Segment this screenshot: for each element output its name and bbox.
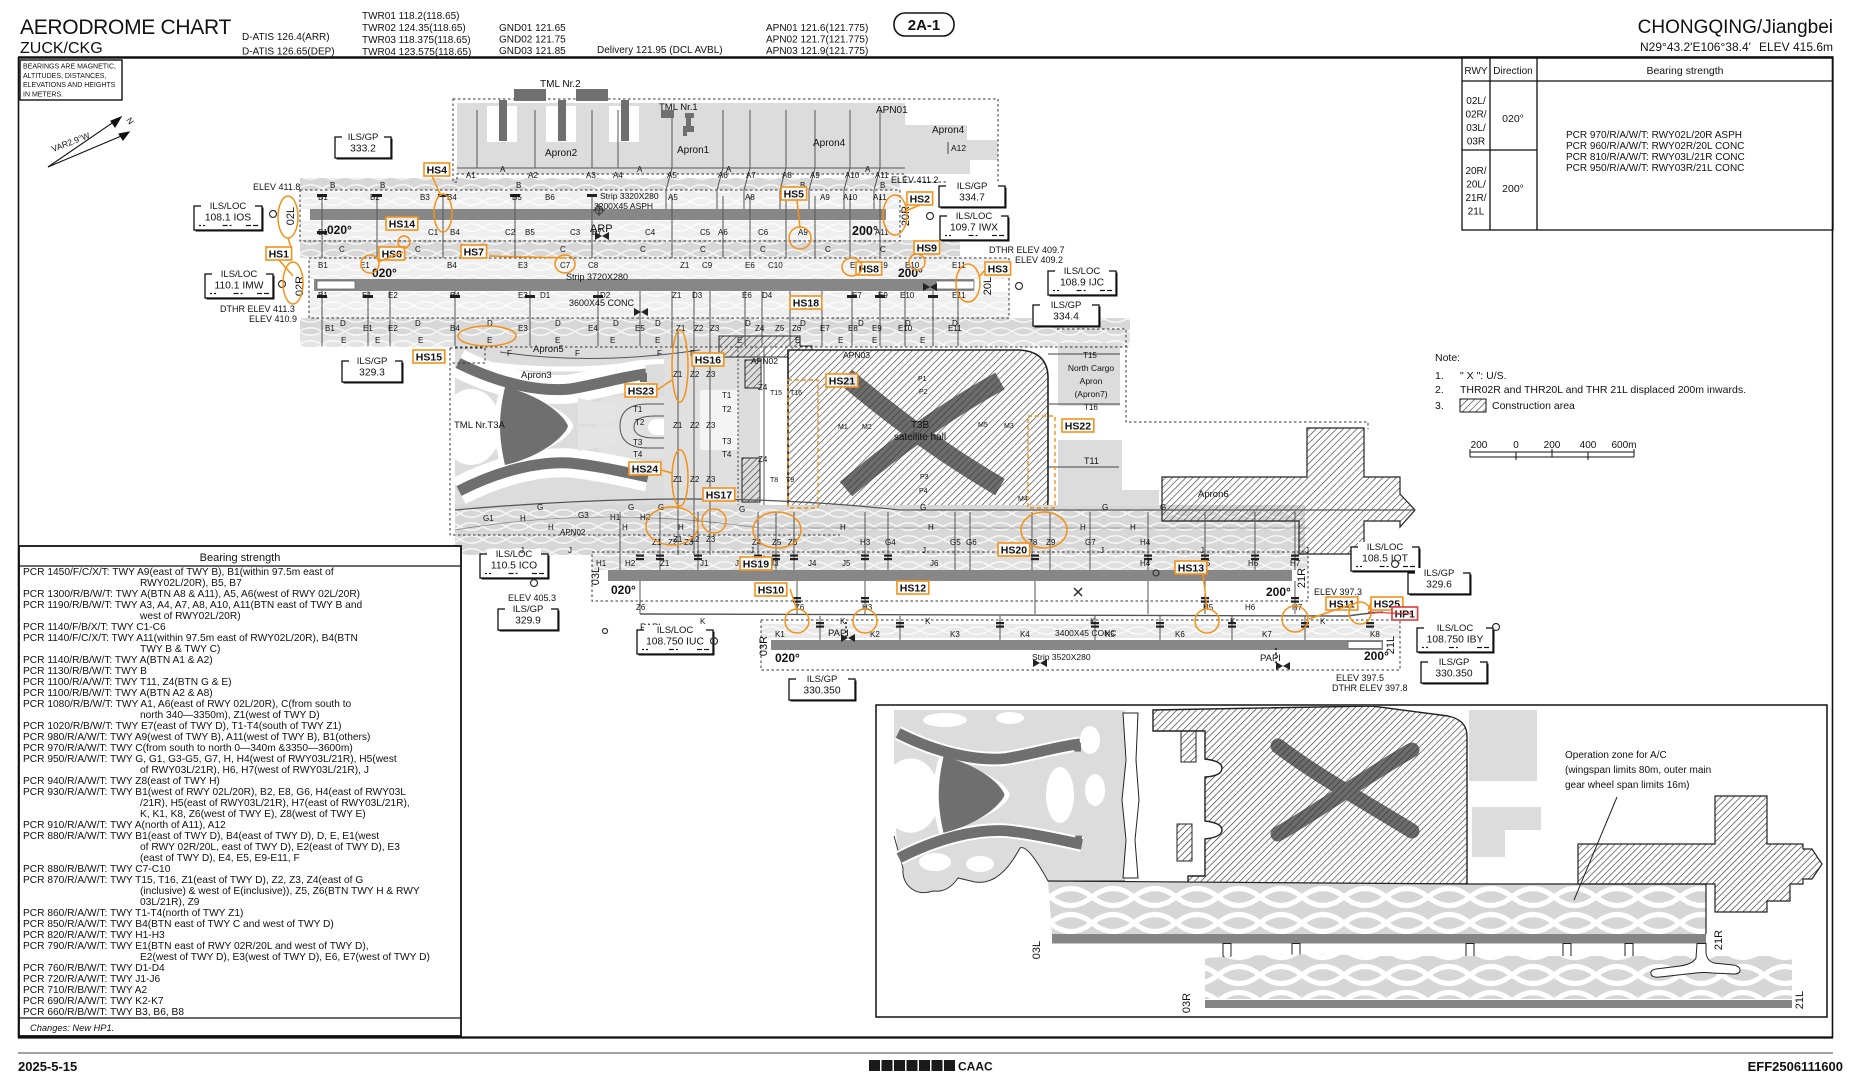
svg-text:C1: C1: [428, 228, 439, 237]
svg-text:ILS/LOC: ILS/LOC: [221, 269, 258, 280]
svg-text:(inclusive) & west of E(inclus: (inclusive) & west of E(inclusive)), Z5,…: [140, 886, 420, 897]
svg-text:of RWY 02R/20L, east of TWY D): of RWY 02R/20L, east of TWY D), E2(east …: [140, 842, 400, 853]
svg-text:03R: 03R: [1181, 993, 1193, 1013]
svg-text:north 340—3350m), Z1(west of T: north 340—3350m), Z1(west of TWY D): [140, 710, 320, 721]
svg-text:D-ATIS 126.4(ARR): D-ATIS 126.4(ARR): [242, 32, 330, 43]
svg-text:T16: T16: [1084, 403, 1098, 412]
svg-text:PCR 910/R/A/W/T: TWY A(north o: PCR 910/R/A/W/T: TWY A(north of A11), A1…: [23, 820, 226, 831]
svg-text:T3: T3: [722, 437, 732, 446]
svg-text:03L: 03L: [1031, 941, 1043, 959]
svg-text:PCR 810/R/A/W/T: RWY03L/21R CO: PCR 810/R/A/W/T: RWY03L/21R CONC: [1566, 152, 1745, 163]
svg-text:E: E: [920, 336, 925, 345]
svg-text:329.9: 329.9: [515, 616, 541, 627]
svg-text:333.2: 333.2: [350, 144, 376, 155]
svg-text:HS18: HS18: [793, 298, 819, 310]
svg-text:A5: A5: [667, 171, 677, 180]
svg-text:A9: A9: [820, 193, 830, 202]
svg-text:G1: G1: [483, 514, 494, 523]
svg-text:satellite hall: satellite hall: [894, 432, 946, 443]
svg-text:GND02 121.75: GND02 121.75: [499, 35, 566, 46]
svg-text:108.750 IBY: 108.750 IBY: [1427, 635, 1484, 646]
svg-text:H3: H3: [860, 538, 871, 547]
svg-text:H: H: [928, 523, 934, 532]
svg-text:" X ": U/S.: " X ": U/S.: [1460, 370, 1507, 382]
svg-text:J5: J5: [842, 559, 851, 568]
svg-text:J: J: [1200, 546, 1204, 555]
svg-text:020°: 020°: [327, 223, 352, 237]
svg-text:HS13: HS13: [1178, 563, 1204, 575]
svg-text:DTHR ELEV 397.8: DTHR ELEV 397.8: [1332, 683, 1408, 693]
svg-text:334.4: 334.4: [1053, 312, 1079, 323]
svg-text:E: E: [341, 336, 346, 345]
svg-text:ILS/GP: ILS/GP: [1439, 657, 1470, 668]
svg-text:PCR 1190/R/B/W/T: TWY A3, A4,: PCR 1190/R/B/W/T: TWY A3, A4, A7, A8, A1…: [23, 600, 363, 611]
svg-text:020°: 020°: [775, 651, 800, 665]
svg-text:Strip 3520X280: Strip 3520X280: [1032, 652, 1091, 662]
svg-text:A5: A5: [668, 193, 678, 202]
svg-text:ELEV 397.5: ELEV 397.5: [1336, 673, 1384, 683]
svg-text:200°: 200°: [1364, 649, 1389, 663]
svg-text:B1: B1: [318, 228, 328, 237]
svg-text:C: C: [760, 245, 766, 254]
svg-text:B4: B4: [450, 324, 460, 333]
svg-text:ILS/LOC: ILS/LOC: [210, 201, 247, 212]
svg-text:02R/: 02R/: [1465, 110, 1486, 121]
svg-text:C3: C3: [570, 228, 581, 237]
svg-text:C: C: [560, 245, 566, 254]
svg-text:H1: H1: [596, 559, 607, 568]
svg-text:E6: E6: [742, 291, 752, 300]
svg-text:Bearing strength: Bearing strength: [1646, 65, 1723, 77]
svg-text:K: K: [840, 617, 846, 626]
svg-text:Z1: Z1: [673, 475, 683, 484]
svg-text:C: C: [415, 245, 421, 254]
svg-text:M3: M3: [1004, 423, 1014, 430]
svg-text:G: G: [537, 503, 543, 512]
svg-text:D: D: [655, 319, 661, 328]
svg-text:Z3: Z3: [706, 475, 716, 484]
svg-text:K5: K5: [1105, 630, 1115, 639]
svg-text:B1: B1: [325, 324, 335, 333]
svg-text:T3B: T3B: [911, 420, 930, 431]
svg-text:APN01: APN01: [876, 105, 908, 116]
svg-text:P3: P3: [920, 474, 929, 481]
svg-text:Delivery 121.95 (DCL AVBL): Delivery 121.95 (DCL AVBL): [597, 45, 723, 56]
svg-text:C4: C4: [645, 228, 656, 237]
svg-text:ILS/LOC: ILS/LOC: [1064, 266, 1101, 277]
svg-text:(east of TWY D), E4, E5, E9-E1: (east of TWY D), E4, E5, E9-E11, F: [140, 853, 300, 864]
svg-text:TML Nr.2: TML Nr.2: [540, 79, 581, 90]
svg-text:B4: B4: [447, 261, 457, 270]
svg-text:110.1 IMW: 110.1 IMW: [214, 281, 263, 292]
svg-text:A11: A11: [873, 193, 887, 202]
svg-text:02L/: 02L/: [1466, 96, 1486, 107]
svg-text:PCR 720/R/A/W/T: TWY J1-J6: PCR 720/R/A/W/T: TWY J1-J6: [23, 974, 161, 985]
svg-text:T2: T2: [722, 405, 732, 414]
svg-text:PCR 1080/R/B/W/T: TWY A1, A6(e: PCR 1080/R/B/W/T: TWY A1, A6(east of RWY…: [23, 699, 352, 710]
svg-text:0: 0: [1513, 440, 1519, 451]
svg-text:E2: E2: [388, 291, 398, 300]
svg-text:PCR 880/R/A/W/T: TWY B1(east o: PCR 880/R/A/W/T: TWY B1(east of TWY D), …: [23, 831, 379, 842]
svg-text:E9: E9: [878, 291, 888, 300]
svg-text:C2: C2: [505, 228, 516, 237]
svg-text:J: J: [750, 546, 754, 555]
svg-text:HS3: HS3: [988, 264, 1009, 276]
svg-text:Z4: Z4: [755, 324, 765, 333]
svg-text:ILS/GP: ILS/GP: [957, 181, 988, 192]
svg-text:E: E: [418, 336, 423, 345]
svg-text:PCR 1140/F/B/X/T: TWY C1-C6: PCR 1140/F/B/X/T: TWY C1-C6: [23, 622, 166, 633]
svg-text:D: D: [340, 319, 346, 328]
svg-text:E: E: [795, 336, 800, 345]
svg-text:108.1 IOS: 108.1 IOS: [205, 213, 251, 224]
svg-text:G4: G4: [885, 538, 896, 547]
svg-text:D: D: [415, 319, 421, 328]
svg-text:E: E: [737, 336, 742, 345]
svg-text:of RWY03L/21R), H6, H7(west of: of RWY03L/21R), H6, H7(west of RWY03L/21…: [140, 765, 369, 776]
svg-text:H: H: [1080, 523, 1086, 532]
svg-text:C7: C7: [560, 261, 571, 270]
svg-text:HS7: HS7: [464, 247, 485, 259]
svg-text:D3: D3: [692, 291, 703, 300]
svg-text:E1: E1: [363, 324, 373, 333]
svg-text:G5: G5: [950, 538, 961, 547]
svg-text:A6: A6: [718, 228, 728, 237]
svg-text:200: 200: [1471, 440, 1488, 451]
svg-text:C6: C6: [758, 228, 769, 237]
svg-text:D: D: [745, 319, 751, 328]
svg-text:A: A: [865, 165, 871, 174]
svg-text:J: J: [520, 546, 524, 555]
svg-text:M1: M1: [838, 424, 848, 431]
svg-text:RWY02L/20R), B5, B7: RWY02L/20R), B5, B7: [140, 578, 242, 589]
svg-text:Operation zone for A/C: Operation zone for A/C: [1565, 750, 1667, 761]
svg-text:ELEV 411.8: ELEV 411.8: [253, 182, 300, 192]
svg-text:B: B: [516, 181, 521, 190]
svg-text:H: H: [520, 514, 526, 523]
svg-text:TWY B & TWY C): TWY B & TWY C): [140, 644, 220, 655]
svg-text:Z3: Z3: [706, 535, 716, 544]
svg-text:PCR 940/R/A/W/T: TWY Z8(east o: PCR 940/R/A/W/T: TWY Z8(east of TWY H): [23, 776, 220, 787]
svg-text:PCR 960/R/A/W/T: RWY02R/20L CO: PCR 960/R/A/W/T: RWY02R/20L CONC: [1566, 141, 1744, 152]
svg-text:PCR 1100/R/A/W/T: TWY T11, Z4(: PCR 1100/R/A/W/T: TWY T11, Z4(BTN G & E): [23, 677, 232, 688]
svg-text:B2: B2: [370, 193, 380, 202]
svg-text:P4: P4: [919, 488, 928, 495]
svg-text:ILS/GP: ILS/GP: [357, 356, 388, 367]
svg-text:N29°43.2'E106°38.4': N29°43.2'E106°38.4': [1640, 40, 1751, 54]
svg-text:PCR 870/R/A/W/T: TWY T15, T16,: PCR 870/R/A/W/T: TWY T15, T16, Z1(east o…: [23, 875, 363, 886]
svg-text:Strip 3320X280: Strip 3320X280: [600, 191, 659, 201]
svg-text:PCR 950/R/A/W/T: TWY G, G1, G3: PCR 950/R/A/W/T: TWY G, G1, G3-G5, G7, H…: [23, 754, 397, 765]
svg-text:03L/: 03L/: [1466, 123, 1486, 134]
svg-text:PCR 820/R/A/W/T: TWY H1-H3: PCR 820/R/A/W/T: TWY H1-H3: [23, 930, 165, 941]
svg-text:HS2: HS2: [910, 194, 931, 206]
svg-text:Z5: Z5: [775, 324, 785, 333]
svg-text:Note:: Note:: [1435, 352, 1460, 364]
svg-text:03R: 03R: [758, 636, 770, 656]
svg-text:APN01 121.6(121.775): APN01 121.6(121.775): [766, 23, 868, 34]
svg-text:K: K: [925, 617, 931, 626]
svg-text:PCR 1300/R/B/W/T: TWY A(BTN A8: PCR 1300/R/B/W/T: TWY A(BTN A8 & A11), A…: [23, 589, 360, 600]
svg-text:T4: T4: [722, 450, 732, 459]
svg-text:330.350: 330.350: [803, 686, 840, 697]
svg-text:J: J: [1100, 546, 1104, 555]
svg-text:Changes: New HP1.: Changes: New HP1.: [30, 1023, 114, 1033]
svg-text:C9: C9: [702, 261, 713, 270]
svg-text:02L: 02L: [285, 207, 297, 225]
svg-text:APN02: APN02: [751, 356, 778, 366]
svg-text:ILS/GP: ILS/GP: [807, 674, 838, 685]
svg-text:J: J: [568, 546, 572, 555]
svg-text:H6: H6: [1245, 603, 1256, 612]
svg-text:E5: E5: [635, 324, 645, 333]
svg-text:HS4: HS4: [427, 165, 448, 177]
svg-text:H: H: [678, 523, 684, 532]
svg-text:PCR 850/R/A/W/T: TWY B4(BTN ea: PCR 850/R/A/W/T: TWY B4(BTN east of TWY …: [23, 919, 334, 930]
svg-text:330.350: 330.350: [1435, 669, 1472, 680]
svg-text:TWR01 118.2(118.65): TWR01 118.2(118.65): [362, 11, 459, 22]
svg-text:gear wheel span limits 16m): gear wheel span limits 16m): [1565, 780, 1690, 791]
svg-text:108.750 IUC: 108.750 IUC: [646, 637, 704, 648]
svg-text:Apron4: Apron4: [813, 138, 846, 149]
svg-text:THR02R and THR20L and THR 21L: THR02R and THR20L and THR 21L displaced …: [1460, 384, 1746, 396]
svg-text:A2: A2: [528, 171, 538, 180]
svg-text:E8: E8: [848, 324, 858, 333]
svg-text:HP1: HP1: [1395, 609, 1416, 621]
svg-text:K7: K7: [1262, 630, 1272, 639]
svg-text:A3: A3: [586, 171, 596, 180]
svg-text:K: K: [1230, 617, 1236, 626]
svg-text:DTHR ELEV 411.3: DTHR ELEV 411.3: [220, 304, 295, 314]
svg-text:109.7 IWX: 109.7 IWX: [950, 223, 998, 234]
svg-text:ILS/GP: ILS/GP: [1424, 568, 1455, 579]
svg-text:(Apron7): (Apron7): [1074, 389, 1107, 399]
svg-text:K: K: [700, 617, 706, 626]
svg-text:HS10: HS10: [758, 585, 784, 597]
svg-text:Z6: Z6: [636, 603, 646, 612]
svg-text:E3: E3: [518, 261, 528, 270]
svg-text:Z3: Z3: [706, 421, 716, 430]
svg-text:A4: A4: [613, 171, 623, 180]
svg-text:A7: A7: [746, 171, 756, 180]
svg-text:ALTITUDES, DISTANCES,: ALTITUDES, DISTANCES,: [23, 73, 106, 80]
svg-text:APN02: APN02: [560, 528, 586, 537]
svg-text:PCR 790/R/A/W/T: TWY E1(BTN ea: PCR 790/R/A/W/T: TWY E1(BTN east of RWY …: [23, 941, 369, 952]
svg-text:E: E: [375, 336, 380, 345]
svg-text:03R: 03R: [1467, 137, 1485, 148]
svg-text:IN METERS.: IN METERS.: [23, 91, 63, 98]
svg-text:PCR 970/R/A/W/T: TWY C(from so: PCR 970/R/A/W/T: TWY C(from south to nor…: [23, 743, 353, 754]
svg-text:C8: C8: [588, 261, 599, 270]
svg-text:APN03: APN03: [843, 350, 870, 360]
svg-text:P1: P1: [918, 376, 927, 383]
svg-text:D: D: [858, 319, 864, 328]
svg-text:H6: H6: [1248, 559, 1259, 568]
svg-text:Apron2: Apron2: [545, 148, 578, 159]
svg-text:H4: H4: [1140, 538, 1151, 547]
svg-text:G: G: [739, 505, 745, 514]
svg-text:E10: E10: [900, 291, 915, 300]
svg-text:HS16: HS16: [695, 355, 721, 367]
svg-text:PCR 710/R/B/W/T: TWY A2: PCR 710/R/B/W/T: TWY A2: [23, 985, 148, 996]
svg-text:K: K: [1320, 617, 1326, 626]
svg-text:D: D: [555, 319, 561, 328]
svg-text:H1: H1: [610, 513, 621, 522]
svg-text:A: A: [726, 165, 732, 174]
svg-text:HS23: HS23: [628, 386, 654, 398]
svg-text:E: E: [655, 336, 660, 345]
svg-text:A9: A9: [810, 171, 820, 180]
svg-text:H: H: [548, 523, 554, 532]
svg-text:ELEVATIONS AND HEIGHTS: ELEVATIONS AND HEIGHTS: [23, 82, 116, 89]
svg-text:P2: P2: [919, 389, 928, 396]
svg-text:/21R), H5(east of RWY03L/21R),: /21R), H5(east of RWY03L/21R), H7(east o…: [140, 798, 410, 809]
svg-text:Z2: Z2: [694, 324, 704, 333]
svg-text:K: K: [1090, 617, 1096, 626]
svg-text:020°: 020°: [1502, 113, 1524, 125]
svg-text:Strip 3720X280: Strip 3720X280: [566, 272, 628, 282]
svg-text:A10: A10: [845, 171, 860, 180]
svg-text:108.9 IJC: 108.9 IJC: [1060, 278, 1105, 289]
svg-text:PCR 760/R/B/W/T: TWY D1-D4: PCR 760/R/B/W/T: TWY D1-D4: [23, 963, 165, 974]
svg-text:020°: 020°: [372, 266, 397, 280]
svg-text:A8: A8: [782, 171, 792, 180]
svg-text:E9: E9: [872, 324, 882, 333]
svg-text:HS5: HS5: [784, 189, 805, 201]
svg-text:A8: A8: [745, 193, 755, 202]
svg-text:T3: T3: [633, 438, 643, 447]
svg-text:J: J: [922, 546, 926, 555]
svg-text:Z2: Z2: [690, 475, 700, 484]
svg-text:K8: K8: [1370, 630, 1380, 639]
svg-text:F: F: [507, 349, 512, 358]
svg-text:Z3: Z3: [710, 324, 720, 333]
svg-text:TML Nr.1: TML Nr.1: [659, 102, 698, 113]
svg-text:Apron3: Apron3: [521, 370, 552, 381]
svg-text:G: G: [1160, 503, 1166, 512]
svg-text:HS14: HS14: [389, 219, 415, 231]
svg-text:K, K1, K8, Z6(west of TWY E),: K, K1, K8, Z6(west of TWY E), Z8(west of…: [140, 809, 366, 820]
svg-text:2.: 2.: [1435, 384, 1444, 396]
svg-text:DTHR ELEV 409.7: DTHR ELEV 409.7: [989, 245, 1065, 255]
svg-text:F: F: [575, 349, 580, 358]
svg-text:A11: A11: [875, 171, 889, 180]
svg-text:E3: E3: [518, 324, 528, 333]
svg-text:H: H: [622, 523, 628, 532]
svg-text:North Cargo: North Cargo: [1068, 363, 1115, 373]
svg-text:2025-5-15: 2025-5-15: [18, 1059, 77, 1074]
svg-text:J4: J4: [808, 559, 817, 568]
svg-text:D1: D1: [540, 291, 551, 300]
svg-text:APN03 121.9(121.775): APN03 121.9(121.775): [766, 46, 868, 57]
svg-text:G3: G3: [578, 511, 589, 520]
svg-text:PCR 690/R/A/W/T: TWY K2-K7: PCR 690/R/A/W/T: TWY K2-K7: [23, 996, 164, 1007]
svg-text:Apron5: Apron5: [533, 344, 564, 355]
svg-text:Direction: Direction: [1493, 66, 1532, 77]
svg-text:329.6: 329.6: [1426, 580, 1452, 591]
svg-text:C: C: [339, 245, 345, 254]
svg-text:CAAC: CAAC: [958, 1060, 993, 1074]
svg-text:21R: 21R: [1296, 568, 1308, 588]
svg-text:E11: E11: [948, 324, 962, 333]
svg-text:EFF2506111600: EFF2506111600: [1748, 1059, 1843, 1074]
svg-text:H2: H2: [625, 559, 636, 568]
svg-text:K3: K3: [950, 630, 960, 639]
svg-text:T8: T8: [770, 477, 778, 484]
svg-text:E1: E1: [362, 291, 372, 300]
svg-text:T11: T11: [1084, 456, 1099, 466]
svg-text:HS20: HS20: [1001, 545, 1027, 557]
svg-text:E: E: [838, 336, 843, 345]
svg-text:G7: G7: [1085, 538, 1096, 547]
svg-text:T15: T15: [1083, 351, 1097, 360]
svg-text:ILS/LOC: ILS/LOC: [1367, 542, 1404, 553]
svg-text:2A-1: 2A-1: [908, 17, 941, 34]
svg-text:200°: 200°: [1266, 585, 1291, 599]
svg-text:Z2: Z2: [690, 370, 700, 379]
svg-text:PCR 980/R/A/W/T: TWY A9(west o: PCR 980/R/A/W/T: TWY A9(west of TWY B), …: [23, 732, 370, 743]
svg-text:ELEV 397.3: ELEV 397.3: [1314, 587, 1362, 597]
svg-text:Z1: Z1: [660, 559, 670, 568]
svg-text:Apron6: Apron6: [1198, 489, 1229, 500]
svg-text:AERODROME CHART: AERODROME CHART: [20, 16, 231, 39]
svg-text:PCR 1130/R/B/W/T: TWY B: PCR 1130/R/B/W/T: TWY B: [23, 666, 147, 677]
svg-text:PCR 1140/F/C/X/T: TWY A11(with: PCR 1140/F/C/X/T: TWY A11(within 97.5m e…: [23, 633, 358, 644]
svg-text:334.7: 334.7: [959, 193, 985, 204]
svg-text:RWY: RWY: [1464, 66, 1487, 77]
svg-text:020°: 020°: [611, 583, 636, 597]
svg-text:ILS/GP: ILS/GP: [513, 604, 544, 615]
svg-text:H4: H4: [1140, 559, 1151, 568]
svg-text:600m: 600m: [1611, 440, 1636, 451]
svg-text:ILS/GP: ILS/GP: [1051, 300, 1082, 311]
svg-text:02R: 02R: [294, 276, 306, 296]
svg-text:K6: K6: [1175, 630, 1185, 639]
svg-text:ILS/LOC: ILS/LOC: [657, 625, 694, 636]
svg-text:B4: B4: [450, 291, 460, 300]
svg-text:3.: 3.: [1435, 400, 1444, 412]
svg-text:C: C: [640, 245, 646, 254]
svg-text:ILS/LOC: ILS/LOC: [956, 211, 993, 222]
svg-text:T2: T2: [635, 418, 645, 427]
svg-text:HS9: HS9: [917, 243, 938, 255]
svg-text:TWR03 118.375(118.65): TWR03 118.375(118.65): [362, 35, 471, 46]
svg-text:TWR04 123.575(118.65): TWR04 123.575(118.65): [362, 47, 471, 58]
svg-text:A1: A1: [466, 171, 476, 180]
svg-text:E: E: [872, 336, 877, 345]
svg-text:03L/21R), Z9: 03L/21R), Z9: [140, 897, 200, 908]
svg-text:J6: J6: [930, 559, 939, 568]
svg-text:Z6: Z6: [792, 324, 802, 333]
svg-text:(wingspan limits 80m, outer ma: (wingspan limits 80m, outer main: [1565, 765, 1711, 776]
svg-text:G6: G6: [966, 538, 977, 547]
svg-text:B6: B6: [545, 193, 555, 202]
svg-text:C: C: [825, 245, 831, 254]
svg-text:T4: T4: [633, 450, 643, 459]
svg-text:Construction area: Construction area: [1492, 400, 1575, 412]
svg-text:K4: K4: [1020, 630, 1030, 639]
svg-text:200°: 200°: [1502, 183, 1524, 195]
svg-text:T1: T1: [722, 391, 732, 400]
svg-text:B1: B1: [318, 193, 328, 202]
svg-text:PCR 930/R/A/W/T: TWY B1(west o: PCR 930/R/A/W/T: TWY B1(west of RWY 02L/…: [23, 787, 406, 798]
svg-text:21R/: 21R/: [1465, 193, 1486, 204]
svg-text:21R: 21R: [1713, 930, 1725, 950]
svg-text:PCR 1140/R/B/W/T: TWY A(BTN A1: PCR 1140/R/B/W/T: TWY A(BTN A1 & A2): [23, 655, 213, 666]
svg-text:20L: 20L: [982, 277, 994, 295]
svg-text:ELEV 410.9: ELEV 410.9: [249, 314, 297, 324]
svg-text:A: A: [637, 165, 643, 174]
